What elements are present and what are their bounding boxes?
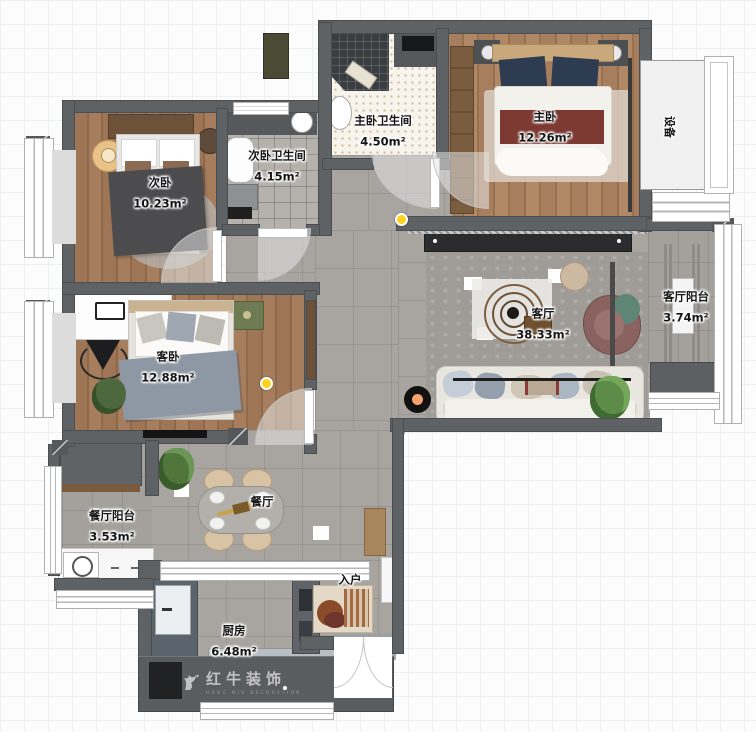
room-name: 餐厅阳台 bbox=[89, 506, 135, 527]
balcony-cabinet bbox=[60, 442, 142, 486]
bath2-sink bbox=[291, 111, 313, 133]
room-area: 4.15m² bbox=[248, 167, 306, 188]
room-name: 餐厅 bbox=[251, 491, 274, 512]
bath2-window bbox=[233, 102, 289, 115]
floor-patch bbox=[313, 526, 329, 540]
room-label-bath-2: 次卧卫生间 4.15m² bbox=[248, 146, 306, 189]
guest-chair bbox=[82, 340, 124, 376]
washer-drum-icon bbox=[72, 556, 93, 577]
sofa-pillow bbox=[473, 371, 506, 401]
desk-lamp-icon bbox=[95, 302, 125, 320]
bay-window bbox=[24, 138, 54, 258]
wall-wood-face bbox=[306, 300, 316, 380]
corridor-floor bbox=[315, 230, 405, 434]
room-area: 6.48m² bbox=[211, 642, 256, 663]
balcony-window bbox=[44, 466, 62, 574]
wall bbox=[62, 282, 320, 295]
room-name: 入户 bbox=[339, 569, 362, 590]
sofa-pillow-stripe bbox=[525, 379, 559, 395]
bay-window bbox=[24, 301, 54, 418]
outdoor-unit bbox=[263, 33, 289, 79]
room-label-living-balcony: 客厅阳台 3.74m² bbox=[663, 287, 709, 330]
plate bbox=[255, 517, 271, 530]
wall bbox=[436, 28, 449, 166]
corner-post bbox=[52, 440, 68, 455]
room-label-entry: 入户 bbox=[339, 569, 362, 590]
washer bbox=[402, 36, 434, 51]
plan-marker bbox=[395, 213, 408, 226]
fridge bbox=[149, 662, 182, 699]
pillow-navy bbox=[551, 56, 599, 89]
platform-frame bbox=[652, 192, 730, 222]
watermark-text: 红牛装饰 HONG NIU DECORATION bbox=[206, 668, 302, 695]
floor-plan: 次卧 10.23m² 次卧卫生间 4.15m² 主卧卫生间 4.50m² 主卧 … bbox=[0, 0, 756, 732]
master-bath-washer-counter bbox=[394, 33, 440, 67]
sofa-pillow bbox=[441, 369, 475, 400]
rug-stripes bbox=[344, 589, 369, 627]
entry-door-threshold bbox=[334, 634, 392, 637]
wall bbox=[138, 560, 162, 580]
room-label-bedroom-2: 次卧 10.23m² bbox=[133, 173, 186, 216]
pillow bbox=[195, 315, 226, 346]
lamp-icon bbox=[101, 148, 116, 163]
armchair-seat bbox=[594, 310, 624, 340]
room-label-dining-room: 餐厅 bbox=[251, 491, 274, 512]
plate bbox=[209, 517, 225, 530]
room-area: 10.23m² bbox=[133, 194, 186, 215]
wall bbox=[318, 22, 332, 236]
room-area: 12.26m² bbox=[518, 128, 571, 149]
wall bbox=[216, 108, 228, 230]
equipment-platform-frame bbox=[704, 56, 734, 194]
speaker-cone bbox=[412, 394, 423, 405]
balcony-cabinet-edge bbox=[60, 484, 140, 492]
rug-dot bbox=[243, 311, 251, 319]
wall-dot bbox=[283, 686, 287, 690]
wall bbox=[396, 216, 650, 231]
pillow-navy bbox=[499, 56, 547, 90]
entry-rug bbox=[313, 585, 373, 633]
sink-mark bbox=[111, 567, 119, 575]
wall-pillar bbox=[145, 440, 159, 496]
kitchen-sink bbox=[155, 585, 191, 635]
room-name: 厨房 bbox=[211, 621, 256, 642]
wall bbox=[318, 20, 652, 34]
rug-motif bbox=[324, 612, 346, 628]
room-area: 3.53m² bbox=[89, 527, 135, 548]
room-area: 12.88m² bbox=[141, 368, 194, 389]
room-name: 设备 bbox=[659, 116, 679, 138]
balcony-window bbox=[56, 590, 154, 609]
curtain-line bbox=[610, 262, 615, 370]
wall bbox=[222, 224, 260, 236]
watermark-brand: 红牛装饰 bbox=[206, 670, 286, 688]
redniu-bull-logo-icon bbox=[182, 672, 200, 692]
wall bbox=[322, 158, 374, 170]
watermark-subtitle: HONG NIU DECORATION bbox=[206, 690, 302, 695]
door-leaf bbox=[304, 390, 314, 444]
balcony-bottom-frame bbox=[648, 392, 720, 410]
watermark: 红牛装饰 HONG NIU DECORATION bbox=[182, 668, 302, 695]
room-label-dining-balcony: 餐厅阳台 3.53m² bbox=[89, 506, 135, 549]
room-area: 3.74m² bbox=[663, 308, 709, 329]
plan-marker bbox=[260, 377, 273, 390]
curtain-line bbox=[628, 58, 632, 212]
balcony-mat bbox=[650, 362, 716, 394]
wall-media-strip bbox=[143, 430, 207, 438]
room-label-kitchen: 厨房 6.48m² bbox=[211, 621, 256, 664]
room-label-equipment: 设备 bbox=[659, 116, 679, 138]
console-knob bbox=[617, 239, 621, 243]
room-area: 4.50m² bbox=[354, 132, 412, 153]
washing-machine bbox=[63, 552, 99, 578]
room-name: 次卧 bbox=[133, 173, 186, 194]
pouf bbox=[560, 262, 589, 291]
room-label-living-room: 客厅 38.33m² bbox=[516, 304, 569, 347]
faucet-icon bbox=[162, 608, 172, 611]
centerpiece bbox=[232, 501, 250, 515]
bath2-mat bbox=[228, 207, 252, 219]
floor-speaker bbox=[404, 386, 431, 413]
room-label-master-bedroom: 主卧 12.26m² bbox=[518, 107, 571, 150]
guest-rug bbox=[230, 301, 264, 330]
room-name: 客厅阳台 bbox=[663, 287, 709, 308]
room-label-master-bath: 主卧卫生间 4.50m² bbox=[354, 111, 412, 154]
room-name: 主卧卫生间 bbox=[354, 111, 412, 132]
pillow bbox=[166, 312, 197, 343]
room-name: 次卧卫生间 bbox=[248, 146, 306, 167]
cabinet-door bbox=[299, 589, 312, 611]
console-knob bbox=[433, 239, 437, 243]
bay-window-sill bbox=[52, 150, 76, 244]
room-area: 38.33m² bbox=[516, 325, 569, 346]
bay-window-sill bbox=[52, 313, 76, 403]
kitchen-window bbox=[200, 702, 334, 720]
room-name: 客卧 bbox=[141, 347, 194, 368]
door-leaf bbox=[212, 230, 222, 282]
door-leaf bbox=[258, 228, 308, 238]
room-name: 客厅 bbox=[516, 304, 569, 325]
wall bbox=[390, 418, 662, 432]
room-label-guest-bedroom: 客卧 12.88m² bbox=[141, 347, 194, 390]
corner-post bbox=[228, 428, 248, 445]
plate bbox=[209, 491, 225, 504]
hallway-cabinet bbox=[364, 508, 386, 556]
tv-console bbox=[424, 231, 632, 252]
wall bbox=[392, 418, 404, 654]
wall bbox=[300, 636, 334, 650]
room-name: 主卧 bbox=[518, 107, 571, 128]
bed-drape bbox=[496, 148, 608, 176]
